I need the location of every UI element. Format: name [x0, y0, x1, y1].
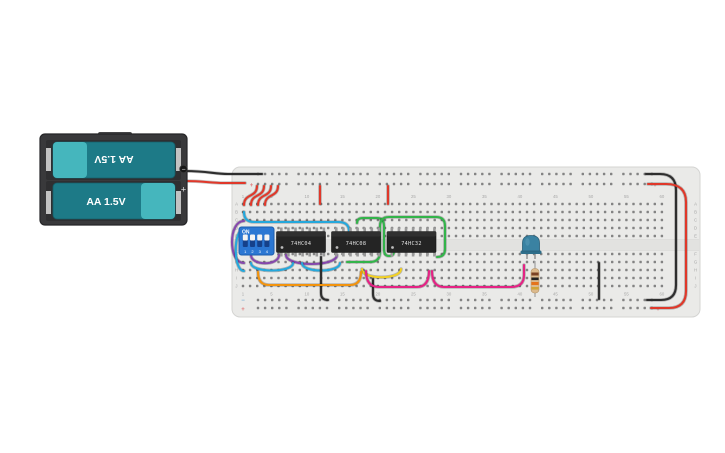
breadboard-hole[interactable]	[441, 261, 443, 263]
ic-74hc04[interactable]: 74HC04	[277, 228, 326, 257]
breadboard-hole[interactable]	[377, 269, 379, 271]
breadboard-rail-hole[interactable]	[433, 183, 435, 185]
breadboard-hole[interactable]	[363, 203, 365, 205]
dip-slider-1[interactable]	[243, 235, 248, 248]
breadboard-hole[interactable]	[412, 261, 414, 263]
breadboard-hole[interactable]	[604, 227, 606, 229]
breadboard-rail-hole[interactable]	[569, 307, 571, 309]
breadboard-hole[interactable]	[299, 277, 301, 279]
breadboard-hole[interactable]	[505, 269, 507, 271]
breadboard-hole[interactable]	[533, 203, 535, 205]
breadboard-hole[interactable]	[469, 261, 471, 263]
breadboard-hole[interactable]	[632, 253, 634, 255]
breadboard-hole[interactable]	[476, 261, 478, 263]
dip-switch[interactable]: ON 1 2 3 4	[239, 227, 274, 255]
breadboard-hole[interactable]	[519, 277, 521, 279]
breadboard-hole[interactable]	[277, 277, 279, 279]
breadboard-rail-hole[interactable]	[636, 307, 638, 309]
breadboard-hole[interactable]	[398, 261, 400, 263]
breadboard-rail-hole[interactable]	[610, 173, 612, 175]
breadboard-hole[interactable]	[568, 203, 570, 205]
breadboard-hole[interactable]	[554, 277, 556, 279]
breadboard-hole[interactable]	[370, 211, 372, 213]
breadboard-hole[interactable]	[299, 211, 301, 213]
breadboard-rail-hole[interactable]	[569, 173, 571, 175]
breadboard-rail-hole[interactable]	[426, 307, 428, 309]
breadboard-hole[interactable]	[419, 277, 421, 279]
breadboard-hole[interactable]	[412, 269, 414, 271]
breadboard-hole[interactable]	[256, 285, 258, 287]
breadboard-hole[interactable]	[505, 211, 507, 213]
breadboard-hole[interactable]	[661, 219, 663, 221]
breadboard-hole[interactable]	[576, 227, 578, 229]
breadboard-hole[interactable]	[526, 203, 528, 205]
breadboard-hole[interactable]	[583, 285, 585, 287]
breadboard-hole[interactable]	[590, 253, 592, 255]
breadboard-hole[interactable]	[497, 235, 499, 237]
breadboard-rail-hole[interactable]	[338, 307, 340, 309]
breadboard-rail-hole[interactable]	[441, 299, 443, 301]
breadboard-rail-hole[interactable]	[481, 173, 483, 175]
breadboard-hole[interactable]	[497, 211, 499, 213]
breadboard-hole[interactable]	[590, 269, 592, 271]
breadboard-hole[interactable]	[497, 227, 499, 229]
breadboard-hole[interactable]	[426, 203, 428, 205]
breadboard-rail-hole[interactable]	[386, 299, 388, 301]
breadboard-rail-hole[interactable]	[508, 307, 510, 309]
breadboard-hole[interactable]	[590, 261, 592, 263]
breadboard-rail-hole[interactable]	[379, 183, 381, 185]
breadboard-hole[interactable]	[341, 277, 343, 279]
breadboard-hole[interactable]	[483, 227, 485, 229]
breadboard-hole[interactable]	[391, 219, 393, 221]
breadboard-rail-hole[interactable]	[285, 307, 287, 309]
breadboard-hole[interactable]	[363, 285, 365, 287]
breadboard-hole[interactable]	[441, 277, 443, 279]
breadboard-hole[interactable]	[377, 203, 379, 205]
breadboard-rail-hole[interactable]	[529, 173, 531, 175]
breadboard-hole[interactable]	[483, 235, 485, 237]
breadboard-hole[interactable]	[526, 227, 528, 229]
breadboard-hole[interactable]	[441, 227, 443, 229]
breadboard-hole[interactable]	[476, 219, 478, 221]
breadboard-rail-hole[interactable]	[345, 307, 347, 309]
breadboard-rail-hole[interactable]	[257, 307, 259, 309]
breadboard-hole[interactable]	[576, 261, 578, 263]
breadboard-hole[interactable]	[625, 235, 627, 237]
breadboard-hole[interactable]	[469, 219, 471, 221]
breadboard-hole[interactable]	[561, 219, 563, 221]
breadboard-hole[interactable]	[348, 203, 350, 205]
breadboard-hole[interactable]	[639, 285, 641, 287]
breadboard-hole[interactable]	[419, 269, 421, 271]
breadboard-hole[interactable]	[540, 203, 542, 205]
breadboard-hole[interactable]	[568, 285, 570, 287]
breadboard-hole[interactable]	[490, 277, 492, 279]
breadboard-hole[interactable]	[313, 211, 315, 213]
breadboard-rail-hole[interactable]	[319, 173, 321, 175]
breadboard-hole[interactable]	[661, 227, 663, 229]
breadboard-rail-hole[interactable]	[407, 299, 409, 301]
breadboard-hole[interactable]	[632, 269, 634, 271]
breadboard-rail-hole[interactable]	[488, 299, 490, 301]
breadboard-rail-hole[interactable]	[366, 307, 368, 309]
breadboard-hole[interactable]	[547, 253, 549, 255]
breadboard-rail-hole[interactable]	[285, 173, 287, 175]
breadboard-rail-hole[interactable]	[407, 183, 409, 185]
breadboard-hole[interactable]	[277, 211, 279, 213]
breadboard-hole[interactable]	[483, 269, 485, 271]
breadboard-hole[interactable]	[476, 235, 478, 237]
breadboard-rail-hole[interactable]	[359, 173, 361, 175]
breadboard-hole[interactable]	[277, 203, 279, 205]
breadboard-hole[interactable]	[448, 253, 450, 255]
breadboard-rail-hole[interactable]	[569, 183, 571, 185]
breadboard-rail-hole[interactable]	[508, 173, 510, 175]
breadboard-hole[interactable]	[568, 277, 570, 279]
breadboard-hole[interactable]	[434, 269, 436, 271]
breadboard-rail-hole[interactable]	[610, 183, 612, 185]
breadboard-hole[interactable]	[611, 235, 613, 237]
breadboard-rail-hole[interactable]	[481, 307, 483, 309]
breadboard-rail-hole[interactable]	[400, 173, 402, 175]
breadboard-rail-hole[interactable]	[297, 173, 299, 175]
breadboard-rail-hole[interactable]	[474, 183, 476, 185]
breadboard-hole[interactable]	[270, 277, 272, 279]
breadboard-hole[interactable]	[561, 211, 563, 213]
breadboard-hole[interactable]	[391, 203, 393, 205]
breadboard-hole[interactable]	[604, 219, 606, 221]
breadboard-rail-hole[interactable]	[636, 173, 638, 175]
breadboard-rail-hole[interactable]	[441, 307, 443, 309]
breadboard-hole[interactable]	[249, 269, 251, 271]
breadboard-rail-hole[interactable]	[548, 173, 550, 175]
breadboard-hole[interactable]	[632, 211, 634, 213]
breadboard-rail-hole[interactable]	[448, 183, 450, 185]
breadboard-hole[interactable]	[363, 211, 365, 213]
breadboard-hole[interactable]	[334, 277, 336, 279]
breadboard-rail-hole[interactable]	[407, 307, 409, 309]
breadboard-hole[interactable]	[661, 285, 663, 287]
breadboard-hole[interactable]	[618, 211, 620, 213]
breadboard-hole[interactable]	[462, 277, 464, 279]
breadboard-hole[interactable]	[469, 211, 471, 213]
breadboard-hole[interactable]	[490, 211, 492, 213]
breadboard-hole[interactable]	[590, 219, 592, 221]
breadboard-hole[interactable]	[355, 269, 357, 271]
battery-plus-terminal[interactable]: +	[181, 185, 186, 195]
breadboard-hole[interactable]	[639, 261, 641, 263]
breadboard-rail-hole[interactable]	[448, 307, 450, 309]
breadboard-hole[interactable]	[540, 277, 542, 279]
breadboard-hole[interactable]	[576, 277, 578, 279]
breadboard-hole[interactable]	[405, 269, 407, 271]
breadboard-rail-hole[interactable]	[359, 299, 361, 301]
breadboard-hole[interactable]	[455, 261, 457, 263]
breadboard-rail-hole[interactable]	[541, 173, 543, 175]
breadboard-rail-hole[interactable]	[400, 299, 402, 301]
breadboard-hole[interactable]	[618, 253, 620, 255]
breadboard-rail-hole[interactable]	[569, 299, 571, 301]
breadboard-hole[interactable]	[490, 235, 492, 237]
breadboard-hole[interactable]	[654, 219, 656, 221]
breadboard-hole[interactable]	[547, 285, 549, 287]
breadboard-hole[interactable]	[526, 269, 528, 271]
breadboard-hole[interactable]	[632, 219, 634, 221]
breadboard-hole[interactable]	[654, 211, 656, 213]
breadboard-hole[interactable]	[419, 211, 421, 213]
breadboard-rail-hole[interactable]	[589, 183, 591, 185]
breadboard-hole[interactable]	[377, 211, 379, 213]
breadboard-hole[interactable]	[583, 253, 585, 255]
breadboard-hole[interactable]	[455, 277, 457, 279]
breadboard-rail-hole[interactable]	[589, 299, 591, 301]
breadboard-rail-hole[interactable]	[488, 307, 490, 309]
breadboard-hole[interactable]	[448, 269, 450, 271]
breadboard-hole[interactable]	[469, 269, 471, 271]
breadboard-rail-hole[interactable]	[474, 307, 476, 309]
breadboard-hole[interactable]	[519, 261, 521, 263]
breadboard-hole[interactable]	[313, 203, 315, 205]
breadboard-rail-hole[interactable]	[305, 307, 307, 309]
breadboard-rail-hole[interactable]	[603, 299, 605, 301]
breadboard-hole[interactable]	[512, 253, 514, 255]
breadboard-rail-hole[interactable]	[541, 183, 543, 185]
breadboard-hole[interactable]	[568, 253, 570, 255]
breadboard-rail-hole[interactable]	[448, 173, 450, 175]
breadboard-hole[interactable]	[568, 261, 570, 263]
breadboard-hole[interactable]	[334, 211, 336, 213]
breadboard-hole[interactable]	[583, 219, 585, 221]
breadboard-hole[interactable]	[355, 277, 357, 279]
breadboard-hole[interactable]	[547, 211, 549, 213]
breadboard-rail-hole[interactable]	[610, 299, 612, 301]
breadboard-rail-hole[interactable]	[541, 299, 543, 301]
breadboard-hole[interactable]	[654, 227, 656, 229]
breadboard-hole[interactable]	[419, 261, 421, 263]
breadboard-rail-hole[interactable]	[448, 299, 450, 301]
breadboard-hole[interactable]	[604, 253, 606, 255]
breadboard-hole[interactable]	[632, 285, 634, 287]
breadboard-hole[interactable]	[398, 219, 400, 221]
breadboard-rail-hole[interactable]	[610, 307, 612, 309]
breadboard-hole[interactable]	[505, 277, 507, 279]
breadboard-rail-hole[interactable]	[582, 173, 584, 175]
breadboard-rail-hole[interactable]	[481, 183, 483, 185]
breadboard-hole[interactable]	[647, 253, 649, 255]
breadboard-hole[interactable]	[384, 211, 386, 213]
breadboard-hole[interactable]	[327, 253, 329, 255]
breadboard-hole[interactable]	[348, 269, 350, 271]
breadboard-hole[interactable]	[583, 235, 585, 237]
breadboard-hole[interactable]	[512, 235, 514, 237]
breadboard-hole[interactable]	[547, 261, 549, 263]
breadboard-hole[interactable]	[611, 285, 613, 287]
breadboard-hole[interactable]	[512, 203, 514, 205]
breadboard-hole[interactable]	[540, 269, 542, 271]
breadboard-hole[interactable]	[292, 269, 294, 271]
breadboard-hole[interactable]	[611, 211, 613, 213]
breadboard-rail-hole[interactable]	[345, 173, 347, 175]
breadboard-hole[interactable]	[526, 285, 528, 287]
breadboard-hole[interactable]	[540, 219, 542, 221]
breadboard-hole[interactable]	[554, 285, 556, 287]
breadboard-rail-hole[interactable]	[500, 299, 502, 301]
breadboard-hole[interactable]	[576, 235, 578, 237]
breadboard-hole[interactable]	[526, 211, 528, 213]
breadboard-rail-hole[interactable]	[488, 183, 490, 185]
breadboard-hole[interactable]	[320, 253, 322, 255]
breadboard-hole[interactable]	[441, 269, 443, 271]
breadboard-hole[interactable]	[483, 219, 485, 221]
breadboard-hole[interactable]	[448, 211, 450, 213]
breadboard-hole[interactable]	[519, 235, 521, 237]
breadboard-hole[interactable]	[384, 261, 386, 263]
breadboard-hole[interactable]	[384, 203, 386, 205]
breadboard-hole[interactable]	[625, 219, 627, 221]
breadboard-hole[interactable]	[554, 253, 556, 255]
breadboard-rail-hole[interactable]	[393, 173, 395, 175]
breadboard-hole[interactable]	[497, 277, 499, 279]
breadboard-hole[interactable]	[632, 277, 634, 279]
breadboard-hole[interactable]	[639, 227, 641, 229]
breadboard-hole[interactable]	[448, 235, 450, 237]
breadboard-rail-hole[interactable]	[312, 173, 314, 175]
breadboard-hole[interactable]	[448, 203, 450, 205]
breadboard-rail-hole[interactable]	[319, 299, 321, 301]
breadboard-hole[interactable]	[561, 227, 563, 229]
breadboard-rail-hole[interactable]	[400, 307, 402, 309]
breadboard-rail-hole[interactable]	[522, 299, 524, 301]
breadboard-hole[interactable]	[320, 227, 322, 229]
breadboard-hole[interactable]	[639, 211, 641, 213]
breadboard-hole[interactable]	[625, 277, 627, 279]
breadboard-hole[interactable]	[554, 269, 556, 271]
breadboard-rail-hole[interactable]	[555, 183, 557, 185]
breadboard-hole[interactable]	[505, 203, 507, 205]
breadboard-rail-hole[interactable]	[271, 299, 273, 301]
breadboard-hole[interactable]	[505, 253, 507, 255]
breadboard-hole[interactable]	[604, 277, 606, 279]
breadboard-rail-hole[interactable]	[555, 299, 557, 301]
breadboard-hole[interactable]	[654, 277, 656, 279]
breadboard-hole[interactable]	[583, 261, 585, 263]
breadboard-hole[interactable]	[590, 211, 592, 213]
breadboard-hole[interactable]	[654, 261, 656, 263]
breadboard-hole[interactable]	[434, 211, 436, 213]
breadboard-hole[interactable]	[654, 285, 656, 287]
breadboard-hole[interactable]	[462, 269, 464, 271]
breadboard-hole[interactable]	[519, 203, 521, 205]
breadboard-hole[interactable]	[597, 203, 599, 205]
breadboard-hole[interactable]	[604, 203, 606, 205]
breadboard-hole[interactable]	[583, 277, 585, 279]
breadboard-rail-hole[interactable]	[548, 299, 550, 301]
breadboard-hole[interactable]	[320, 211, 322, 213]
breadboard-rail-hole[interactable]	[562, 183, 564, 185]
breadboard-rail-hole[interactable]	[622, 173, 624, 175]
breadboard-rail-hole[interactable]	[596, 183, 598, 185]
breadboard-rail-hole[interactable]	[366, 299, 368, 301]
breadboard-hole[interactable]	[654, 253, 656, 255]
breadboard-hole[interactable]	[611, 203, 613, 205]
breadboard-hole[interactable]	[476, 203, 478, 205]
breadboard-hole[interactable]	[469, 227, 471, 229]
breadboard-hole[interactable]	[618, 277, 620, 279]
breadboard-hole[interactable]	[313, 253, 315, 255]
breadboard-hole[interactable]	[526, 219, 528, 221]
breadboard-rail-hole[interactable]	[515, 299, 517, 301]
breadboard-hole[interactable]	[448, 219, 450, 221]
breadboard-rail-hole[interactable]	[326, 183, 328, 185]
breadboard-hole[interactable]	[462, 227, 464, 229]
breadboard-hole[interactable]	[540, 285, 542, 287]
breadboard-rail-hole[interactable]	[359, 307, 361, 309]
breadboard-hole[interactable]	[519, 227, 521, 229]
breadboard-hole[interactable]	[512, 219, 514, 221]
breadboard-hole[interactable]	[647, 285, 649, 287]
breadboard-hole[interactable]	[554, 219, 556, 221]
breadboard-hole[interactable]	[490, 219, 492, 221]
breadboard-hole[interactable]	[512, 227, 514, 229]
breadboard-hole[interactable]	[462, 203, 464, 205]
breadboard-hole[interactable]	[590, 277, 592, 279]
breadboard-hole[interactable]	[284, 211, 286, 213]
breadboard-hole[interactable]	[476, 211, 478, 213]
breadboard-rail-hole[interactable]	[529, 299, 531, 301]
breadboard-hole[interactable]	[561, 203, 563, 205]
breadboard-rail-hole[interactable]	[508, 299, 510, 301]
breadboard-hole[interactable]	[462, 261, 464, 263]
breadboard-rail-hole[interactable]	[603, 183, 605, 185]
breadboard-rail-hole[interactable]	[603, 307, 605, 309]
breadboard-rail-hole[interactable]	[441, 173, 443, 175]
breadboard-hole[interactable]	[519, 211, 521, 213]
breadboard-hole[interactable]	[618, 219, 620, 221]
breadboard-hole[interactable]	[434, 261, 436, 263]
breadboard-hole[interactable]	[455, 253, 457, 255]
breadboard-rail-hole[interactable]	[467, 307, 469, 309]
breadboard-rail-hole[interactable]	[426, 173, 428, 175]
breadboard-hole[interactable]	[632, 261, 634, 263]
ic-74hc32[interactable]: 74HC32	[387, 228, 436, 257]
breadboard-hole[interactable]	[490, 253, 492, 255]
breadboard-rail-hole[interactable]	[312, 299, 314, 301]
breadboard-hole[interactable]	[576, 285, 578, 287]
breadboard-hole[interactable]	[568, 269, 570, 271]
breadboard-hole[interactable]	[455, 203, 457, 205]
breadboard-hole[interactable]	[639, 269, 641, 271]
breadboard-hole[interactable]	[540, 261, 542, 263]
breadboard-rail-hole[interactable]	[481, 299, 483, 301]
breadboard-hole[interactable]	[583, 269, 585, 271]
breadboard-hole[interactable]	[412, 219, 414, 221]
breadboard-hole[interactable]	[412, 211, 414, 213]
breadboard-rail-hole[interactable]	[460, 299, 462, 301]
breadboard-hole[interactable]	[313, 227, 315, 229]
breadboard-rail-hole[interactable]	[366, 173, 368, 175]
breadboard-rail-hole[interactable]	[359, 183, 361, 185]
breadboard-hole[interactable]	[490, 269, 492, 271]
breadboard-hole[interactable]	[405, 211, 407, 213]
breadboard-rail-hole[interactable]	[500, 183, 502, 185]
breadboard-hole[interactable]	[363, 277, 365, 279]
breadboard-hole[interactable]	[483, 211, 485, 213]
breadboard-hole[interactable]	[654, 269, 656, 271]
breadboard-hole[interactable]	[370, 203, 372, 205]
breadboard-hole[interactable]	[292, 203, 294, 205]
breadboard-rail-hole[interactable]	[305, 183, 307, 185]
